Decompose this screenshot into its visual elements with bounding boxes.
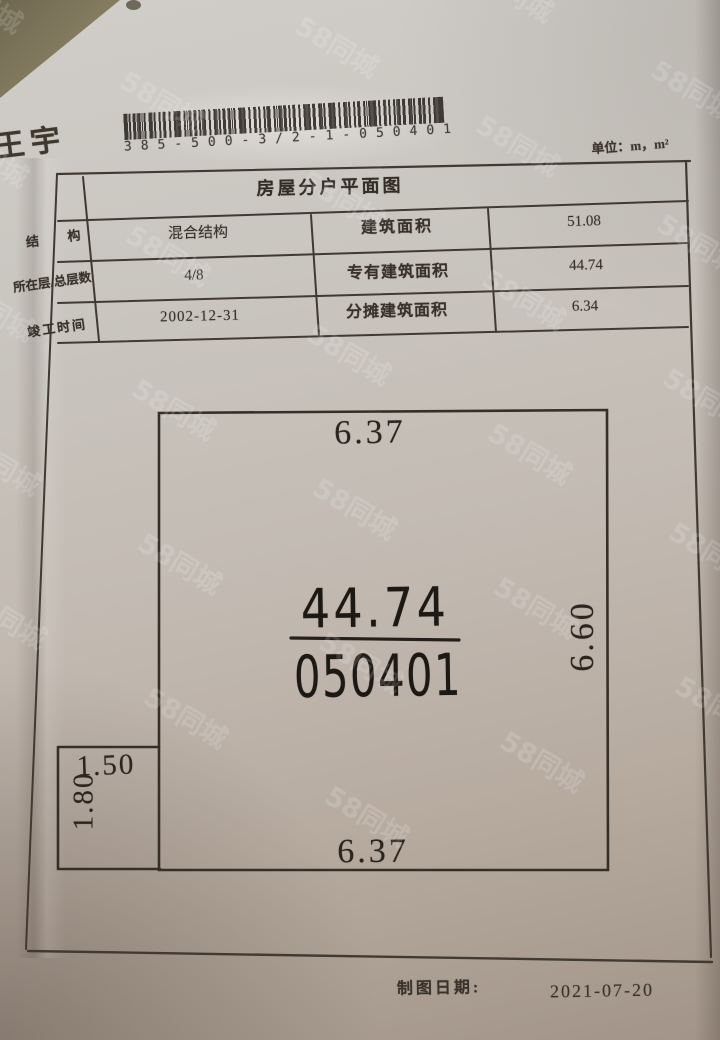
plan-dimension-right: 6.60 — [564, 600, 602, 672]
row-building-area-value: 51.08 — [567, 213, 601, 231]
row-completion-value: 2002-12-31 — [160, 308, 240, 327]
drawing-date-value: 2021-07-20 — [550, 980, 654, 1003]
owner-name: 王宇 — [0, 114, 68, 166]
row-exclusive-area-label: 专有建筑面积 — [347, 257, 450, 283]
plan-annex-height: 1.80 — [68, 772, 101, 831]
row-exclusive-area-value: 44.74 — [569, 257, 603, 275]
plan-unit-number: 050401 — [294, 641, 463, 711]
form-title: 房屋分户平面图 — [256, 171, 404, 200]
row-shared-area-label: 分摊建筑面积 — [346, 296, 449, 322]
row-structure-value: 混合结构 — [168, 221, 228, 243]
form-lines — [0, 0, 720, 1040]
document-photo: 王宇 385-500-3/2-1-050401 单位：m，m² 房屋分户平面图 … — [0, 0, 720, 1040]
row-shared-area-value: 6.34 — [572, 298, 599, 316]
plan-dimension-bottom: 6.37 — [337, 833, 409, 872]
row-building-area-label: 建筑面积 — [361, 212, 434, 238]
row-floor-value: 4/8 — [184, 267, 204, 284]
drawing-date-label: 制图日期: — [397, 973, 482, 998]
plan-area-value: 44.74 — [300, 575, 449, 640]
plan-dimension-top: 6.37 — [334, 413, 406, 452]
